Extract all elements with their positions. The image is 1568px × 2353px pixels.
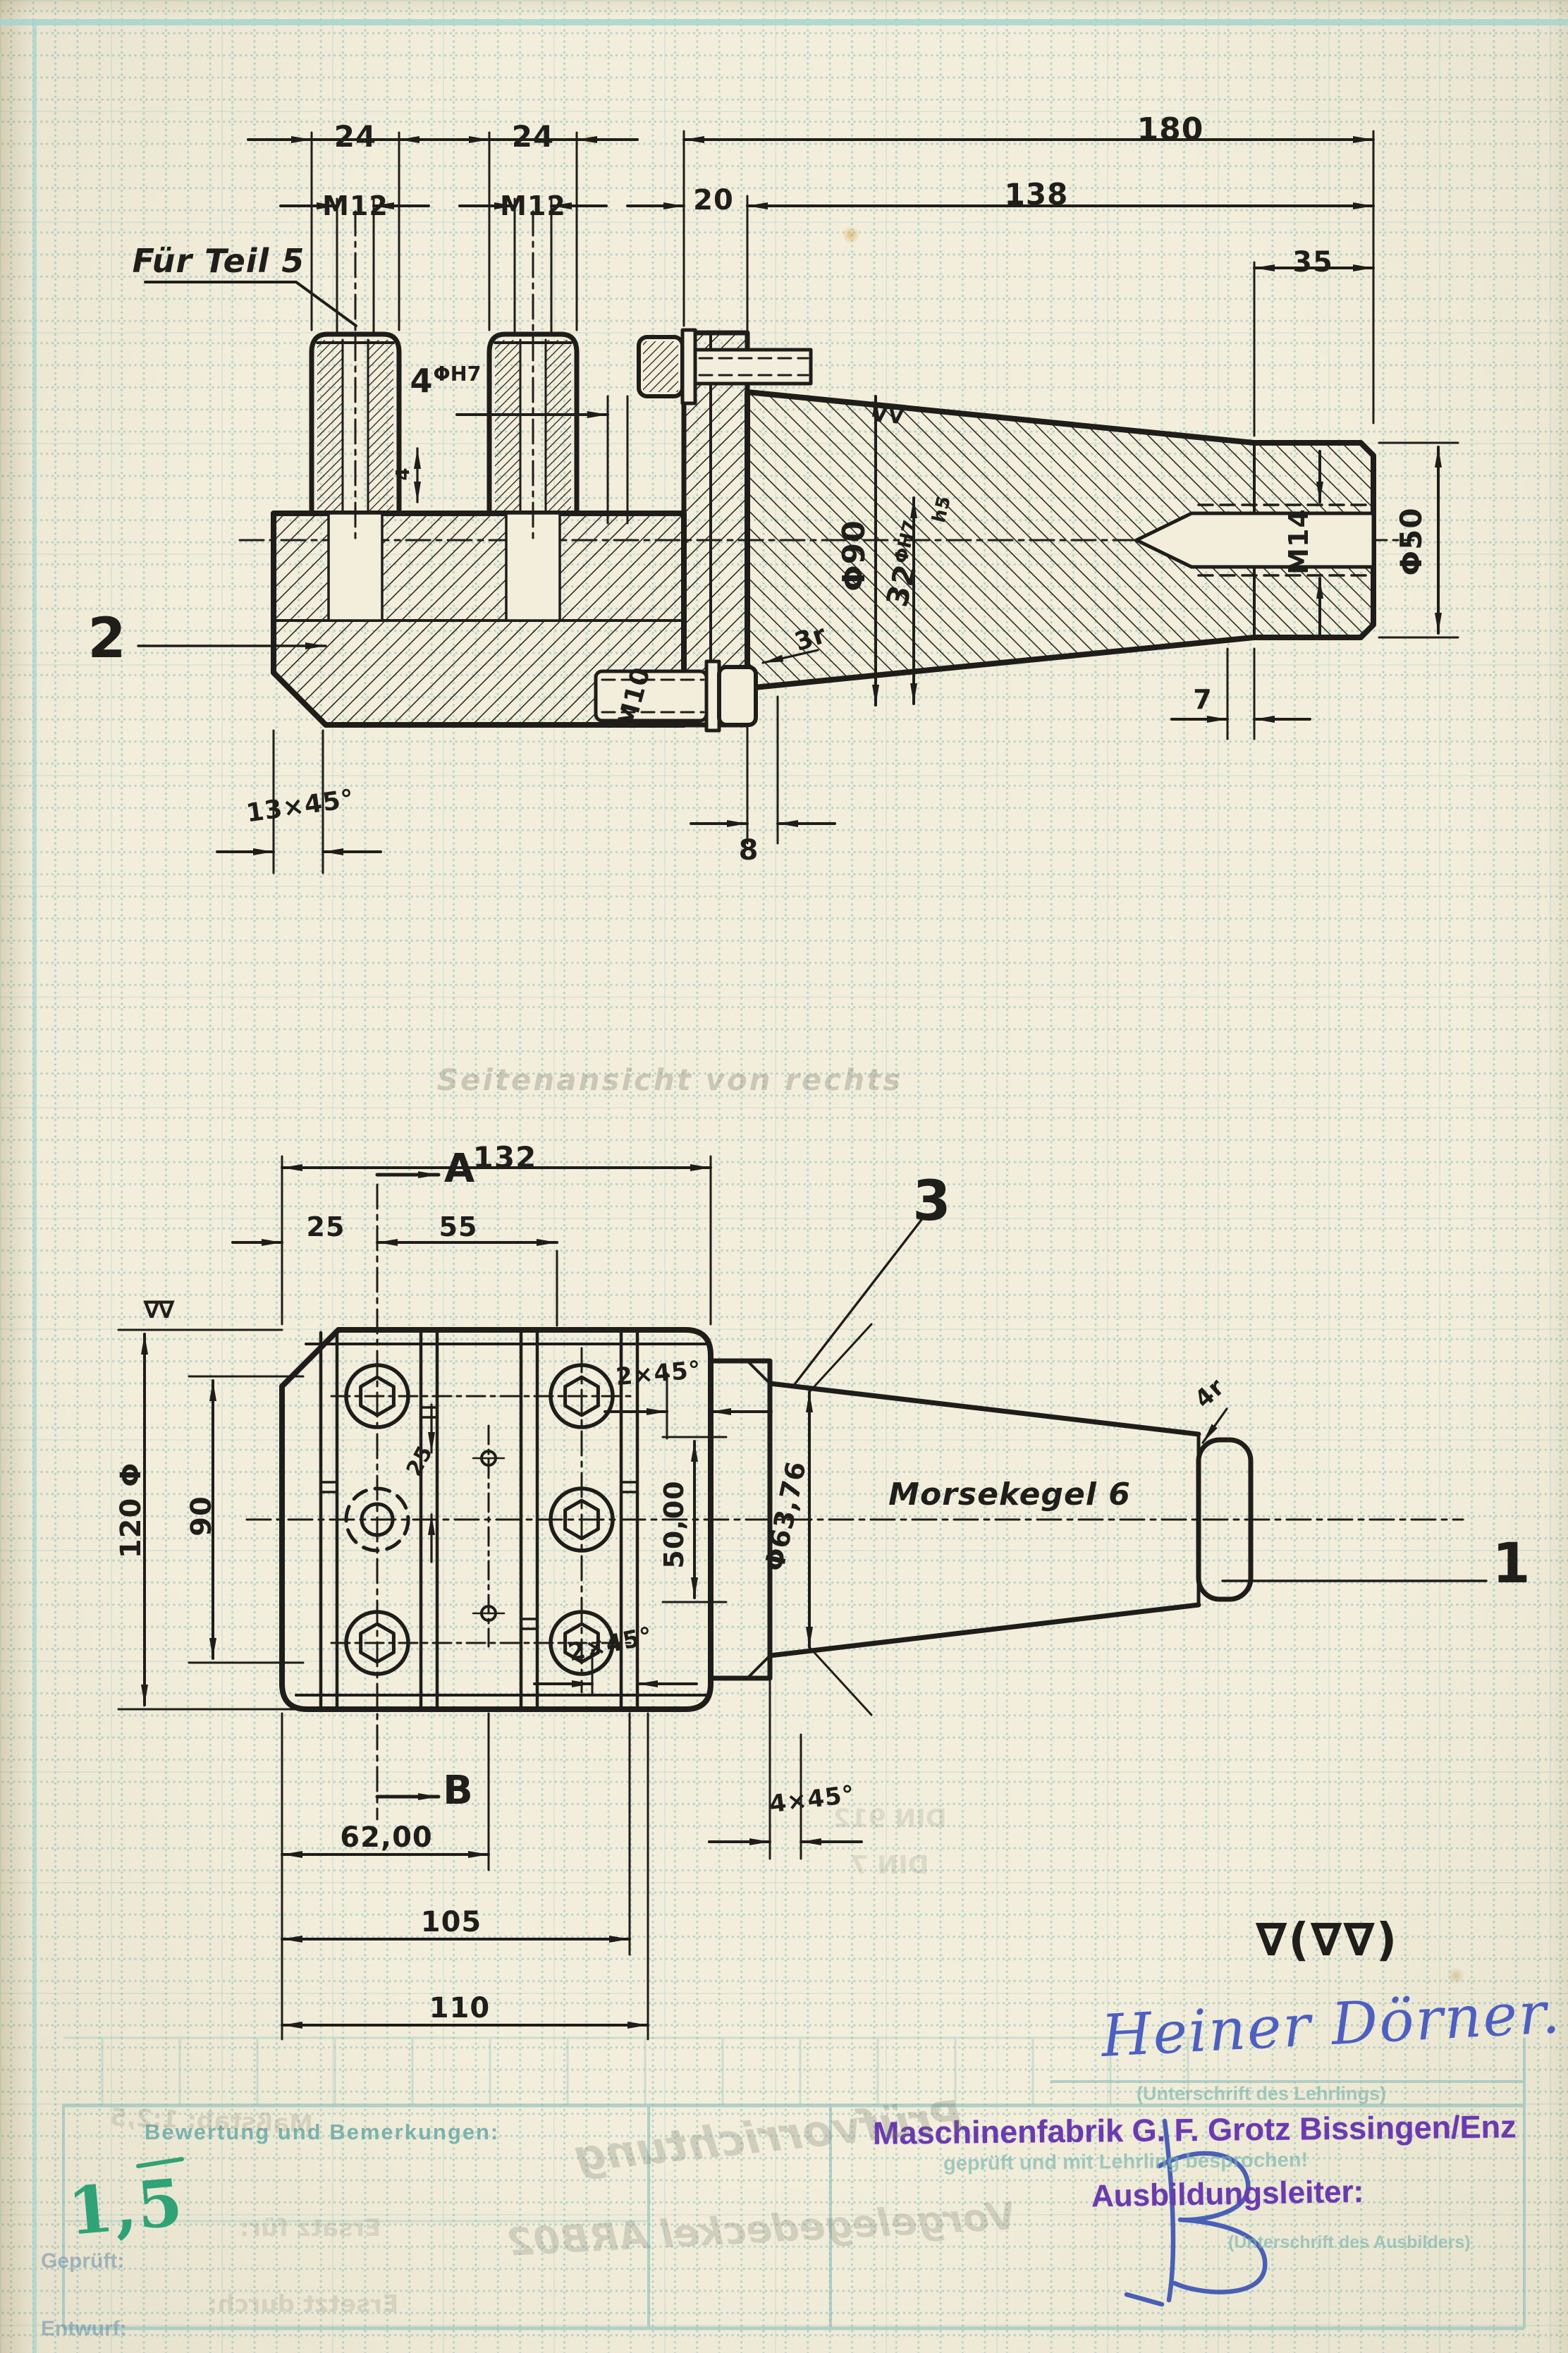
dim-138: 138 bbox=[1005, 180, 1069, 209]
dim-20: 20 bbox=[693, 186, 734, 214]
dim-50: 50,00 bbox=[661, 1480, 687, 1568]
hole-tolerance: ΦH7 bbox=[434, 362, 482, 386]
bleed-din-912: DIN 912 bbox=[833, 1807, 946, 1832]
dim-phi90: Φ90 bbox=[839, 520, 870, 592]
dim-132: 132 bbox=[473, 1143, 537, 1173]
dim-105: 105 bbox=[421, 1908, 482, 1936]
dim-35: 35 bbox=[1292, 248, 1333, 276]
checked-stamp-line: geprüft und mit Lehrling besprochen! bbox=[943, 2150, 1308, 2174]
dim-110: 110 bbox=[429, 1994, 491, 2022]
trainer-signature-stroke bbox=[1127, 2121, 1265, 2304]
front-view-dimensions bbox=[118, 1156, 1486, 2039]
bleed-massstab: Maßstab: 1:2,5 bbox=[110, 2106, 314, 2137]
bore-right bbox=[506, 513, 560, 621]
surface-finish-icon: ∇∇ bbox=[143, 1298, 172, 1322]
hole-value: 4 bbox=[410, 362, 434, 400]
top-section-view bbox=[240, 212, 1414, 731]
note-fuer-teil-5: Für Teil 5 bbox=[133, 245, 305, 277]
dim-2x45-top: 2×45° bbox=[615, 1358, 702, 1389]
dim-24-right: 24 bbox=[512, 122, 554, 152]
dim-120phi: 120 Φ bbox=[117, 1462, 145, 1558]
part-label-2: 2 bbox=[87, 611, 126, 666]
bleed-ersetzt: Ersetzt durch: bbox=[208, 2292, 399, 2316]
dim-180: 180 bbox=[1137, 114, 1204, 145]
part-label-1: 1 bbox=[1492, 1536, 1531, 1591]
section-arrow-a: A bbox=[444, 1149, 475, 1189]
dim-depth-4: 4 bbox=[394, 467, 412, 480]
surface-finish-icon: ∇∇ bbox=[869, 398, 905, 429]
section-arrow-b: B bbox=[443, 1771, 474, 1811]
grade-value: 1,5 bbox=[66, 2170, 185, 2244]
part-label-3: 3 bbox=[912, 1174, 951, 1229]
company-stamp: Maschinenfabrik G. F. Grotz Bissingen/En… bbox=[873, 2110, 1517, 2149]
dim-8: 8 bbox=[739, 836, 759, 864]
dim-25: 25 bbox=[307, 1214, 345, 1240]
trainer-signature-caption: (Unterschrift des Ausbilders) bbox=[1228, 2234, 1471, 2251]
dim-55: 55 bbox=[439, 1214, 478, 1240]
field-geprueft: Geprüft: bbox=[41, 2251, 124, 2272]
apprentice-signature-caption: (Unterschrift des Lehrlings) bbox=[1137, 2084, 1386, 2103]
dim-7: 7 bbox=[1193, 686, 1212, 713]
dim-m14: M14 bbox=[1285, 508, 1312, 575]
bleed-din-7: DIN 7 bbox=[851, 1853, 929, 1878]
front-view bbox=[247, 1185, 1463, 1819]
dim-phi50: Φ50 bbox=[1397, 507, 1426, 575]
dim-m12-right: M12 bbox=[500, 192, 566, 219]
dim-24-left: 24 bbox=[334, 122, 376, 152]
bleed-ersatz: Ersatz für: bbox=[240, 2216, 381, 2240]
bore-left bbox=[329, 513, 382, 621]
scanned-technical-drawing: 24 24 180 M12 M12 20 138 35 Für Teil 5 2… bbox=[0, 0, 1568, 2353]
view-caption-ghost: Seitenansicht von rechts bbox=[437, 1065, 903, 1095]
finish-note-symbol: ∇(∇∇) bbox=[1256, 1918, 1398, 1963]
field-entwurf: Entwurf: bbox=[41, 2318, 127, 2340]
note-morsekegel: Morsekegel 6 bbox=[888, 1479, 1131, 1510]
dim-62: 62,00 bbox=[340, 1823, 433, 1852]
role-stamp: Ausbildungsleiter: bbox=[1091, 2177, 1364, 2213]
dim-m12-left: M12 bbox=[322, 192, 388, 219]
dim-hole-4h7: 4ΦH7 bbox=[410, 365, 482, 397]
dim-90: 90 bbox=[188, 1496, 216, 1536]
